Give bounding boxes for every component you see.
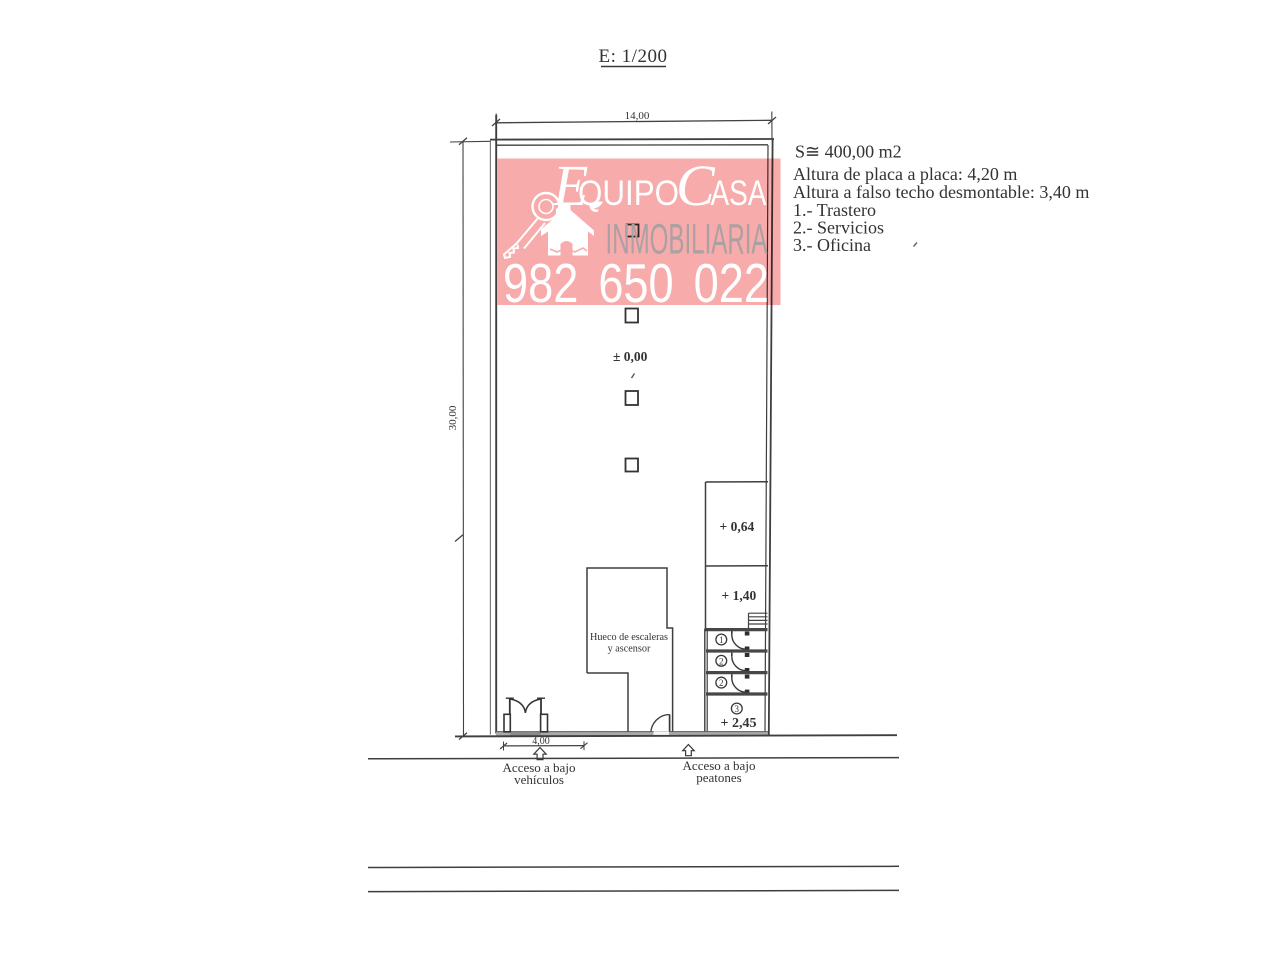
svg-text:QUIPO: QUIPO [578,174,679,213]
svg-text:4,00: 4,00 [532,736,550,747]
svg-text:Altura a falso techo desmontab: Altura a falso techo desmontable: 3,40 m [793,182,1089,202]
svg-text:2: 2 [719,656,724,666]
svg-text:+ 1,40: + 1,40 [722,588,757,603]
svg-text:30,00: 30,00 [447,405,459,430]
svg-text:ASA: ASA [711,174,768,213]
svg-text:y ascensor: y ascensor [608,644,651,655]
svg-text:982 650 022: 982 650 022 [503,252,769,314]
svg-text:peatones: peatones [696,770,741,785]
svg-text:S≅ 400,00 m2: S≅ 400,00 m2 [795,142,902,162]
svg-text:2: 2 [719,678,724,688]
svg-text:3.- Oficina: 3.- Oficina [793,235,871,255]
svg-text:Altura de placa a placa: 4,20: Altura de placa a placa: 4,20 m [793,164,1017,184]
svg-text:± 0,00: ± 0,00 [613,349,648,364]
svg-text:E: 1/200: E: 1/200 [599,46,668,67]
svg-text:+ 2,45: + 2,45 [721,716,757,731]
svg-text:1: 1 [719,635,724,645]
svg-text:Hueco de escaleras: Hueco de escaleras [590,632,668,643]
svg-text:+ 0,64: + 0,64 [720,519,755,534]
svg-text:14,00: 14,00 [625,110,650,122]
svg-text:vehículos: vehículos [514,772,564,787]
svg-text:3: 3 [735,704,740,714]
